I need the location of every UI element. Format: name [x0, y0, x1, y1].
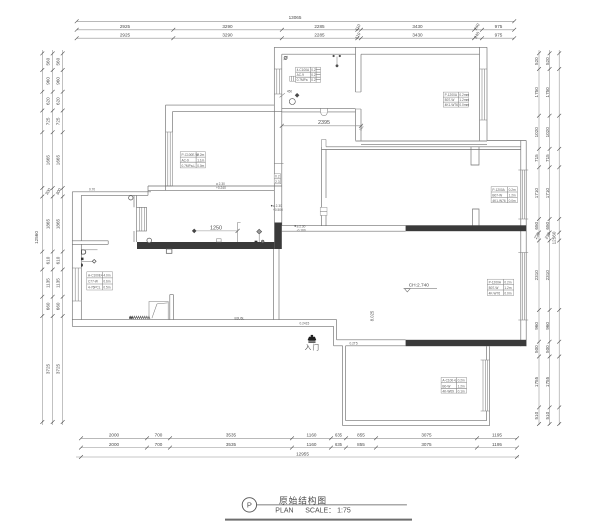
svg-text:P-1200A: P-1200A [492, 188, 505, 192]
svg-text:3430: 3430 [412, 24, 423, 29]
svg-text:13065: 13065 [289, 15, 302, 20]
svg-text:C77-W: C77-W [88, 280, 98, 284]
svg-text:3725: 3725 [45, 363, 50, 374]
svg-text:-0.160: -0.160 [297, 228, 306, 232]
svg-text:0.2m: 0.2m [197, 153, 204, 157]
svg-text:1.2mm: 1.2mm [459, 98, 469, 102]
svg-text:1020: 1020 [545, 127, 550, 138]
svg-text:3535: 3535 [226, 442, 237, 447]
svg-text:2310: 2310 [545, 270, 550, 281]
svg-text:+0.240: +0.240 [216, 186, 226, 190]
svg-text:960: 960 [56, 77, 61, 85]
svg-text:620: 620 [45, 97, 50, 105]
svg-text:700: 700 [155, 442, 163, 447]
svg-text:B07-W: B07-W [445, 98, 455, 102]
svg-text:510: 510 [534, 411, 539, 419]
svg-text:1750: 1750 [545, 87, 550, 98]
svg-text:650: 650 [534, 221, 539, 229]
svg-text:B07-W: B07-W [489, 286, 499, 290]
svg-text:520: 520 [545, 57, 550, 65]
svg-text:975: 975 [495, 24, 503, 29]
svg-text:0.7MPa: 0.7MPa [297, 78, 308, 82]
svg-text:4K1-W76: 4K1-W76 [492, 199, 506, 203]
svg-text:520: 520 [534, 57, 539, 65]
svg-text:1865: 1865 [56, 219, 61, 230]
svg-text:4.0m: 4.0m [103, 273, 110, 277]
svg-text:0.0mm: 0.0mm [459, 103, 469, 107]
svg-text:725: 725 [45, 117, 50, 125]
svg-text:12560: 12560 [34, 231, 39, 244]
svg-text:B0-W: B0-W [442, 384, 450, 388]
svg-text:0.5m: 0.5m [103, 286, 110, 290]
svg-text:960: 960 [45, 77, 50, 85]
svg-text:1195: 1195 [492, 433, 502, 438]
svg-text:1710: 1710 [534, 188, 539, 199]
svg-text:500: 500 [534, 345, 539, 353]
svg-text:1135: 1135 [45, 278, 50, 288]
svg-text:4-76PCL: 4-76PCL [88, 286, 101, 290]
svg-text:0.7MPa-L: 0.7MPa-L [182, 164, 196, 168]
svg-text:1665: 1665 [45, 155, 50, 166]
svg-text:300: 300 [44, 187, 52, 196]
svg-text:2000: 2000 [109, 433, 120, 438]
svg-text:300: 300 [54, 187, 62, 196]
svg-text:1250: 1250 [210, 225, 222, 231]
svg-text:3075: 3075 [421, 433, 432, 438]
svg-text:2285: 2285 [314, 33, 325, 38]
svg-text:0.2T5: 0.2T5 [350, 341, 358, 345]
svg-text:2310: 2310 [534, 270, 539, 281]
svg-text:4K-W09: 4K-W09 [442, 390, 454, 394]
svg-text:3430: 3430 [412, 33, 423, 38]
svg-text:3725: 3725 [56, 363, 61, 374]
svg-text:3290: 3290 [222, 24, 233, 29]
svg-text:2395: 2395 [318, 120, 330, 126]
svg-text:660: 660 [45, 302, 50, 310]
svg-text:4K1-W76: 4K1-W76 [445, 103, 459, 107]
svg-text:A-C100E4: A-C100E4 [88, 273, 103, 277]
svg-text:2925: 2925 [120, 33, 131, 38]
svg-text:1.2m: 1.2m [458, 384, 465, 388]
svg-text:AC-9: AC-9 [182, 158, 189, 162]
svg-text:960: 960 [545, 322, 550, 330]
svg-text:2925: 2925 [120, 24, 131, 29]
svg-text:12560: 12560 [551, 231, 556, 244]
svg-text:3290: 3290 [222, 33, 233, 38]
svg-text:855: 855 [357, 433, 365, 438]
svg-text:620: 620 [56, 97, 61, 105]
svg-text:500: 500 [545, 345, 550, 353]
svg-text:0.2m: 0.2m [458, 379, 465, 383]
svg-text:1160: 1160 [307, 442, 317, 447]
svg-text:725: 725 [56, 117, 61, 125]
svg-text:0.2: 0.2 [311, 78, 316, 82]
svg-text:P: P [247, 501, 252, 510]
svg-text:2285: 2285 [314, 24, 325, 29]
svg-text:B07-W: B07-W [492, 193, 502, 197]
svg-text:0.2: 0.2 [275, 175, 280, 179]
svg-text:0.2m: 0.2m [504, 281, 511, 285]
svg-text:975: 975 [495, 33, 503, 38]
svg-text:510: 510 [545, 411, 550, 419]
svg-text:1665: 1665 [56, 155, 61, 166]
svg-text:0.0m: 0.0m [197, 164, 204, 168]
svg-text:P-C100E-W: P-C100E-W [182, 153, 199, 157]
svg-text:3075: 3075 [421, 442, 432, 447]
svg-text:1755: 1755 [545, 376, 550, 387]
svg-text:610: 610 [45, 256, 50, 264]
svg-text:0.0m: 0.0m [509, 199, 516, 203]
svg-text:CH:2.740: CH:2.740 [409, 283, 430, 289]
svg-text:855: 855 [357, 442, 365, 447]
svg-text:2.3: 2.3 [275, 180, 280, 184]
svg-text:0.2415: 0.2415 [300, 322, 310, 326]
svg-text:1750: 1750 [534, 87, 539, 98]
svg-text:AC-9: AC-9 [297, 73, 304, 77]
svg-text:0.1m: 0.1m [458, 390, 465, 394]
svg-text:P-1200A: P-1200A [445, 93, 458, 97]
svg-text:700: 700 [155, 433, 163, 438]
svg-text:450: 450 [287, 90, 293, 94]
svg-text:1135: 1135 [56, 278, 61, 288]
svg-text:660: 660 [56, 302, 61, 310]
svg-text:8.025: 8.025 [370, 310, 375, 321]
svg-text:原始结构图: 原始结构图 [279, 494, 327, 505]
svg-text:635: 635 [335, 442, 343, 447]
svg-text:PLAN SCALE： 1:75: PLAN SCALE： 1:75 [275, 508, 351, 515]
svg-text:B3U6L: B3U6L [235, 316, 245, 320]
svg-text:610: 610 [56, 256, 61, 264]
svg-text:1.1m: 1.1m [197, 158, 204, 162]
svg-text:0.0m: 0.0m [504, 291, 511, 295]
svg-text:560: 560 [56, 57, 61, 65]
svg-text:715: 715 [545, 154, 550, 162]
svg-text:1865: 1865 [45, 219, 50, 230]
svg-text:0.2mm: 0.2mm [459, 93, 469, 97]
svg-text:1020: 1020 [534, 127, 539, 138]
svg-text:1755: 1755 [534, 376, 539, 387]
svg-text:960: 960 [534, 322, 539, 330]
svg-text:4-C100A: 4-C100A [297, 68, 310, 72]
svg-text:230: 230 [533, 231, 541, 240]
svg-text:1710: 1710 [545, 188, 550, 199]
svg-text:+0.500: +0.500 [273, 208, 283, 212]
svg-text:0.6m: 0.6m [103, 280, 110, 284]
svg-text:650: 650 [545, 221, 550, 229]
svg-text:715: 715 [534, 154, 539, 162]
svg-text:560: 560 [45, 57, 50, 65]
svg-text:入门: 入门 [305, 343, 321, 352]
svg-text:1.2m: 1.2m [504, 286, 511, 290]
svg-text:1195: 1195 [492, 442, 502, 447]
svg-text:2000: 2000 [109, 442, 120, 447]
svg-text:3535: 3535 [226, 433, 237, 438]
svg-text:0.2: 0.2 [311, 73, 316, 77]
svg-text:0.70: 0.70 [89, 188, 95, 192]
svg-text:P-1200A: P-1200A [489, 281, 502, 285]
svg-text:0.2: 0.2 [311, 68, 316, 72]
svg-text:635: 635 [335, 433, 343, 438]
svg-text:4K-W76: 4K-W76 [489, 291, 501, 295]
svg-text:A-C100+L: A-C100+L [442, 379, 457, 383]
svg-text:0.2m: 0.2m [509, 188, 516, 192]
svg-text:1160: 1160 [307, 433, 317, 438]
svg-text:12955: 12955 [296, 451, 309, 456]
svg-text:1.2m: 1.2m [509, 193, 516, 197]
